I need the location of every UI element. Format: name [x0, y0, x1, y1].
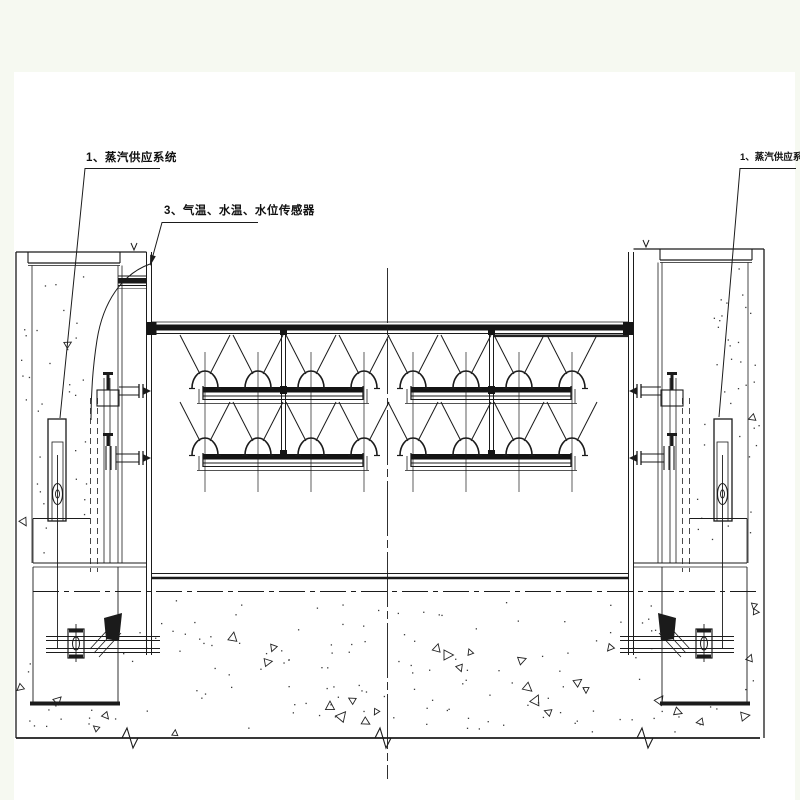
label-steam-supply-right: 1、蒸汽供应系统	[740, 151, 800, 163]
drawing-sheet	[14, 72, 795, 800]
technical-drawing-canvas: 1、蒸汽供应系统 3、气温、水温、水位传感器 1、蒸汽供应系统	[0, 0, 800, 800]
label-steam-supply-left: 1、蒸汽供应系统	[86, 150, 177, 164]
label-sensors: 3、气温、水温、水位传感器	[164, 203, 315, 217]
page-background: 1、蒸汽供应系统 3、气温、水温、水位传感器 1、蒸汽供应系统	[0, 0, 800, 800]
